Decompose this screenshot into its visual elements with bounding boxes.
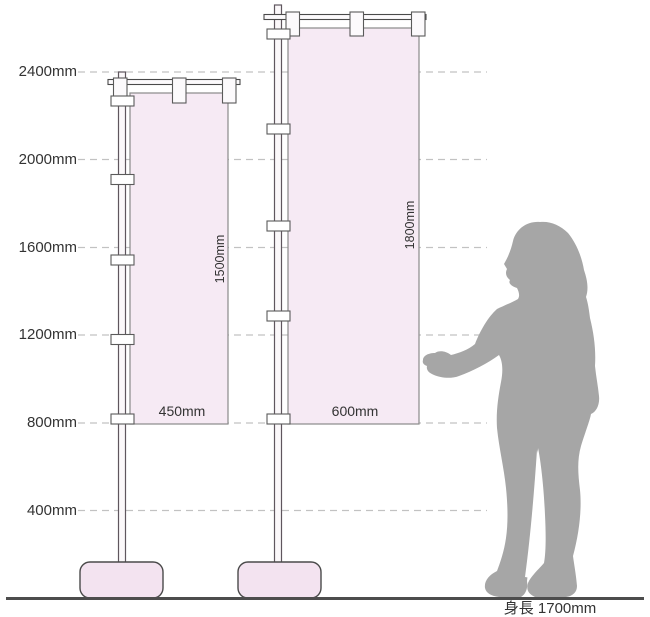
pole-clip bbox=[267, 414, 290, 424]
pole-clip bbox=[267, 29, 290, 39]
flag-large-group bbox=[238, 5, 426, 598]
diagram-artwork bbox=[0, 0, 650, 617]
pole-clip bbox=[267, 311, 290, 321]
axis-label-2000mm: 2000mm bbox=[0, 151, 77, 169]
axis-label-400mm: 400mm bbox=[0, 502, 77, 520]
pole-clip bbox=[111, 335, 134, 345]
flag-large-height-label: 1800mm bbox=[402, 180, 418, 270]
axis-label-2400mm: 2400mm bbox=[0, 63, 77, 81]
flag-large-width-label: 600mm bbox=[310, 403, 400, 419]
flag-tab bbox=[350, 12, 364, 36]
flag-large-banner bbox=[288, 28, 419, 424]
flag-small-width-label: 450mm bbox=[137, 403, 227, 419]
pole-clip bbox=[111, 414, 134, 424]
person-body-shape bbox=[423, 222, 599, 597]
person-height-label: 身長 1700mm bbox=[470, 601, 630, 617]
flag-tab bbox=[223, 78, 237, 103]
flag-tab bbox=[173, 78, 187, 103]
flag-small-pole bbox=[119, 72, 126, 563]
axis-label-800mm: 800mm bbox=[0, 414, 77, 432]
person-silhouette bbox=[423, 222, 599, 597]
pole-clip bbox=[267, 221, 290, 231]
flag-large-pole bbox=[275, 5, 282, 563]
pole-clip bbox=[111, 255, 134, 265]
flag-small-base bbox=[80, 562, 163, 598]
flag-small-height-label: 1500mm bbox=[212, 214, 228, 304]
flag-large-base bbox=[238, 562, 321, 598]
pole-clip bbox=[111, 175, 134, 185]
axis-label-1200mm: 1200mm bbox=[0, 326, 77, 344]
flag-tab bbox=[412, 12, 426, 36]
axis-label-1600mm: 1600mm bbox=[0, 239, 77, 257]
pole-clip bbox=[111, 96, 134, 106]
diagram-canvas: 2400mm 2000mm 1600mm 1200mm 800mm 400mm … bbox=[0, 0, 650, 617]
pole-clip bbox=[267, 124, 290, 134]
